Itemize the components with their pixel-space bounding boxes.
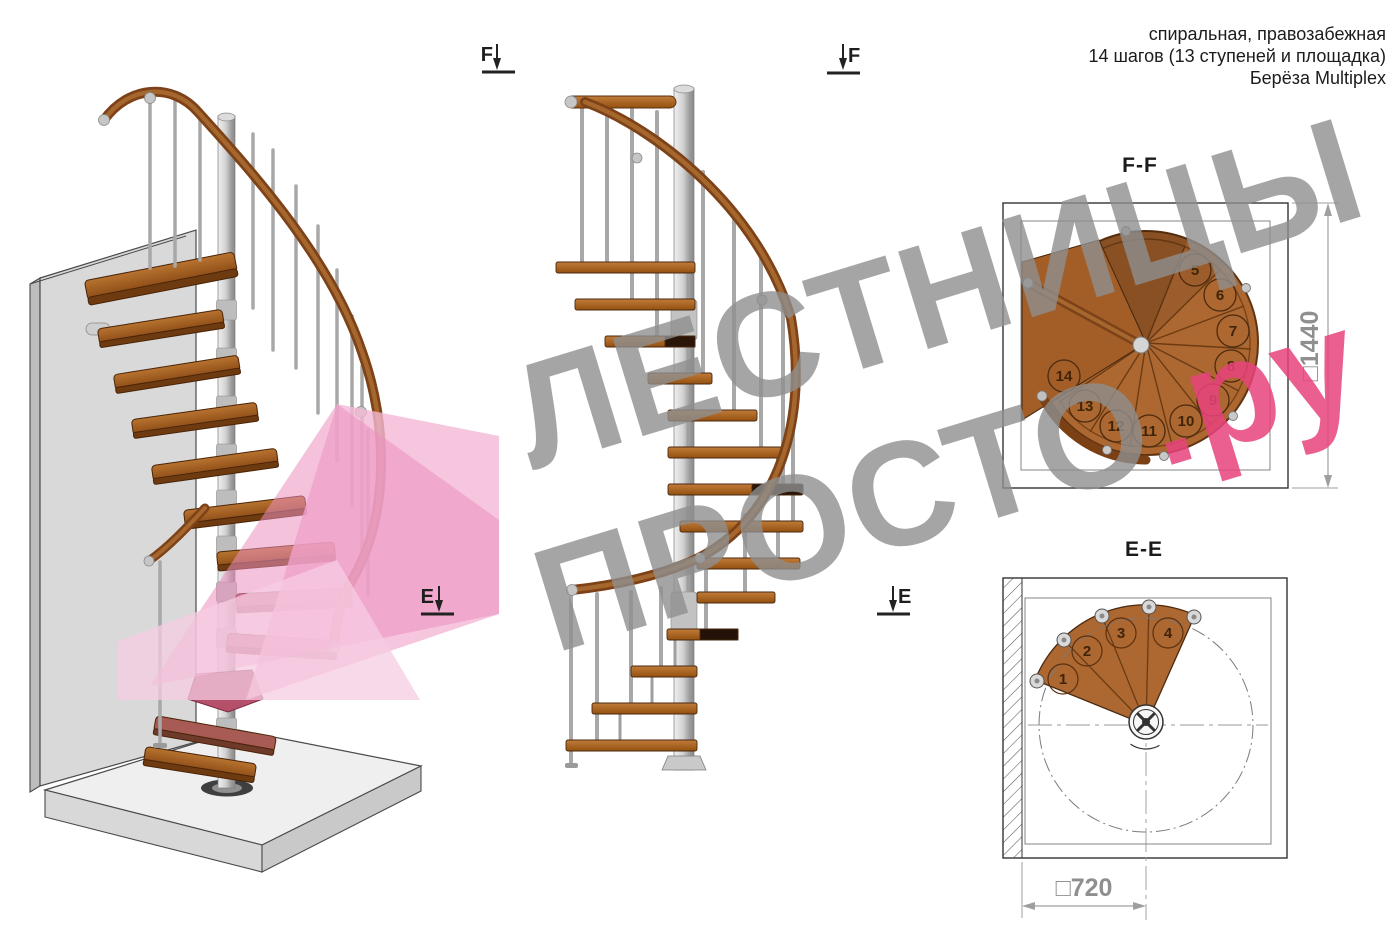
baluster-foot-elevation <box>565 763 578 768</box>
pole-base-elevation <box>662 756 706 770</box>
step-number: 2 <box>1083 643 1091 660</box>
marker-e-left-label: E <box>421 586 434 608</box>
ee-pole-section <box>1129 705 1163 749</box>
marker-f-left-label: F <box>481 44 493 66</box>
handrail-sleeve-elevation <box>632 153 642 163</box>
ee-dimension-label: □720 <box>1056 874 1113 902</box>
handrail-cap-top-3d <box>99 115 110 126</box>
wall-face <box>40 230 196 786</box>
pole-top-cap-3d <box>218 113 235 121</box>
handrail-sleeve-3d <box>145 93 156 104</box>
ee-title: E-E <box>1125 538 1163 561</box>
header: спиральная, правозабежная 14 шагов (13 с… <box>1088 24 1386 88</box>
ee-wall-hatch <box>1003 578 1022 858</box>
marker-e-right-label: E <box>898 586 911 608</box>
header-line-2: 14 шагов (13 ступеней и площадка) <box>1088 46 1386 66</box>
header-line-3: Берёза Multiplex <box>1250 68 1386 88</box>
ee-dimension: □720 <box>1022 862 1146 918</box>
wall-side-edge <box>30 278 40 792</box>
baluster-foot-3d <box>153 743 167 748</box>
entry-rail-cap-3d <box>144 556 154 566</box>
top-rail-cap <box>565 96 577 108</box>
ee-rail-start-arc <box>1131 744 1160 749</box>
marker-f-left: F <box>481 44 515 72</box>
marker-e-right: E <box>877 586 911 614</box>
marker-f-right-label: F <box>848 45 860 67</box>
view-3d <box>30 92 499 872</box>
step-number: 3 <box>1117 625 1125 642</box>
header-line-1: спиральная, правозабежная <box>1149 24 1386 44</box>
pole-top-cap-elevation <box>674 85 694 93</box>
watermark: ЛЕСТНИЦЫ ПРОСТО.ру <box>463 86 1400 684</box>
step-number: 1 <box>1059 671 1067 688</box>
step-number: 4 <box>1164 625 1173 642</box>
section-ee: 1 2 3 4 □720 E-E <box>1003 538 1287 920</box>
staircase-drawing: 5 6 7 8 9 10 11 12 13 14 □1440 F-F <box>0 0 1400 940</box>
marker-f-right: F <box>827 44 860 73</box>
drawing-sheet: 5 6 7 8 9 10 11 12 13 14 □1440 F-F <box>0 0 1400 940</box>
